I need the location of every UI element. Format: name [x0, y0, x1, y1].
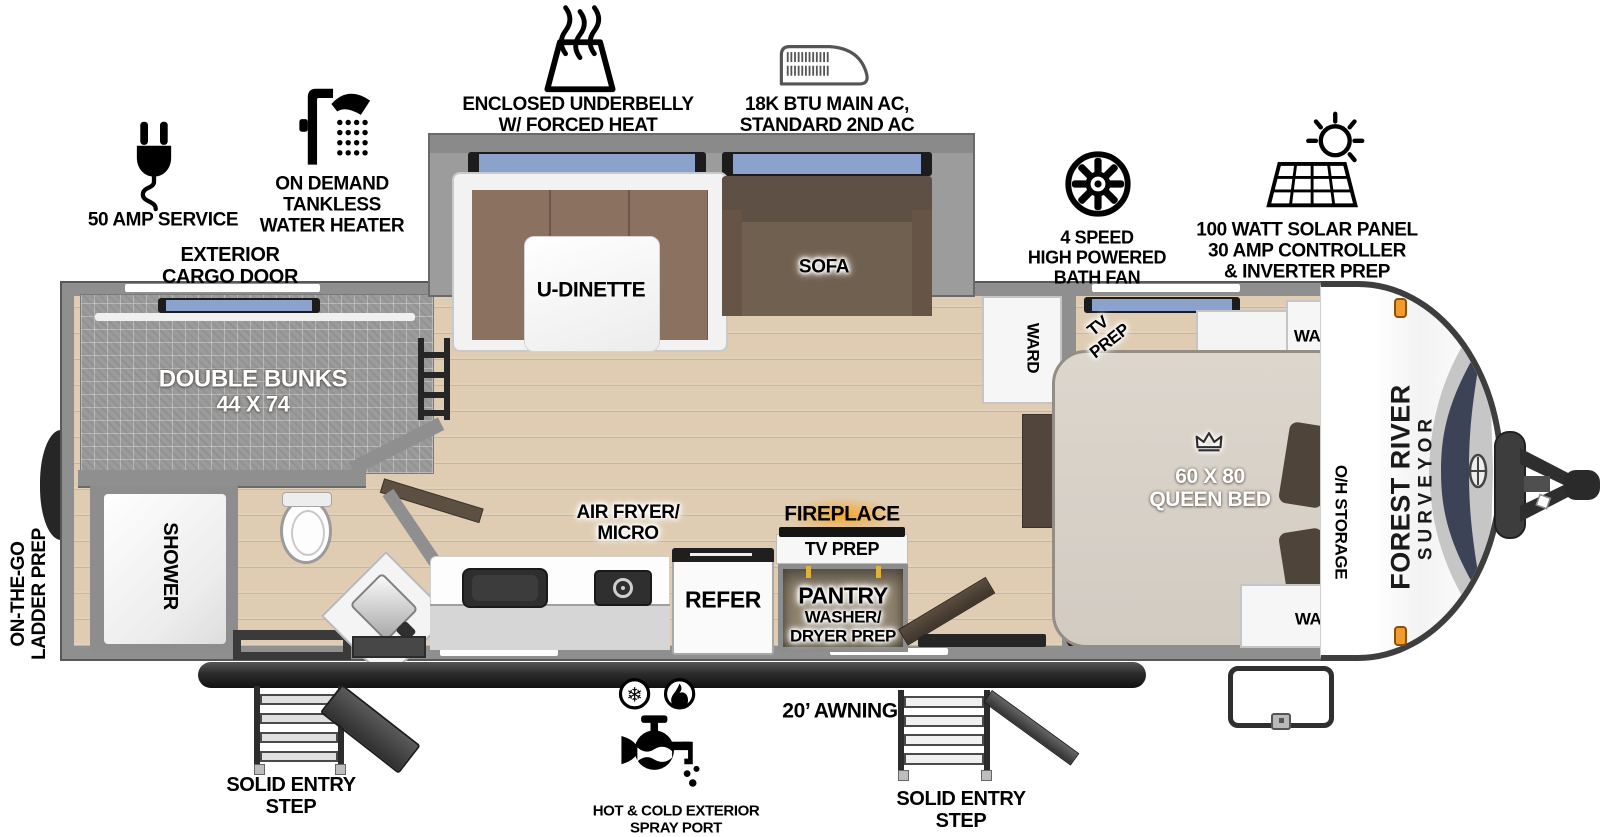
sofa-window [722, 152, 932, 176]
sofa-armrest [912, 210, 932, 316]
refer-label: REFER [685, 587, 761, 612]
step-foot [981, 770, 992, 781]
solar-label: 100 WATT SOLAR PANEL 30 AMP CONTROLLER &… [1196, 221, 1417, 284]
open-door-flap-right [983, 690, 1079, 766]
ladder-prep-label: ON-THE-GO LADDER PREP [9, 528, 51, 660]
kitchen-sink [462, 568, 548, 608]
fan-icon [1062, 148, 1134, 220]
bath-vanity-frame [233, 630, 351, 660]
queen-bed-label: 60 X 80 QUEEN BED [1149, 465, 1270, 511]
brand-make: FOREST RIVER [1387, 384, 1417, 590]
step-tread [260, 751, 338, 762]
toilet-lid [291, 510, 325, 556]
step-tread [904, 715, 984, 727]
shower-label: SHOWER [159, 522, 181, 610]
step-tread [904, 696, 984, 708]
heated-underbelly-icon [536, 0, 624, 96]
marker-light [1394, 298, 1407, 318]
oh-storage-label: O/H STORAGE [1331, 465, 1350, 579]
ladder-rung [418, 392, 450, 398]
air-conditioner-icon [775, 36, 875, 90]
entry-step-left-label: SOLID ENTRY STEP [226, 774, 355, 818]
water-heater-label: ON DEMAND TANKLESS WATER HEATER [260, 175, 404, 238]
hall-ward-label: WARD [1023, 323, 1042, 373]
entry-step-right-label: SOLID ENTRY STEP [896, 788, 1025, 832]
ladder-rung [418, 372, 450, 378]
sink-basin [472, 575, 538, 601]
bath-fan-label: 4 SPEED HIGH POWERED BATH FAN [1028, 228, 1166, 287]
power-plug-icon [128, 120, 180, 216]
cooktop [594, 570, 652, 606]
cargo-door-label: EXTERIOR CARGO DOOR [162, 244, 298, 288]
ac-label: 18K BTU MAIN AC, STANDARD 2ND AC [740, 95, 915, 137]
counter-face [430, 604, 670, 650]
floorplan-page: { "colors": { "wall_gray": "#8f8f8f", "f… [0, 0, 1600, 836]
storage-compartment-door [1228, 666, 1334, 728]
spray-port-icon: ❄ [612, 676, 720, 798]
slideout-top-wall [430, 135, 973, 153]
dinette-label: U-DINETTE [537, 278, 645, 301]
bunk-mattress-edge [95, 313, 415, 321]
latch-button [1279, 718, 1284, 723]
step-tread [904, 753, 984, 765]
pantry-handle [876, 566, 881, 578]
shower-head-icon [296, 82, 376, 168]
hitch-assembly [1494, 424, 1600, 548]
bunk-ladder [418, 338, 450, 420]
bath-cabinet [352, 636, 426, 658]
step-tread [904, 734, 984, 746]
spray-port-label: HOT & COLD EXTERIOR SPRAY PORT [593, 804, 760, 837]
bunks-label: DOUBLE BUNKS 44 X 74 [159, 367, 348, 418]
sofa-back [722, 176, 932, 222]
air-fryer-label: AIR FRYER/ MICRO [577, 503, 680, 545]
bunk-window [158, 298, 320, 313]
crown-icon [1194, 430, 1224, 453]
ladder-rail [418, 338, 424, 420]
entry-step-right [898, 690, 990, 778]
sofa-label: SOFA [799, 258, 849, 279]
amp-service-label: 50 AMP SERVICE [88, 211, 238, 232]
refer-handle [690, 553, 752, 556]
fireplace-front [779, 527, 905, 537]
burner-center [621, 586, 625, 590]
ladder-rung [418, 410, 450, 416]
sofa [722, 176, 932, 316]
ladder-rung [418, 352, 450, 358]
brand-label: FOREST RIVER SURVEYOR [1387, 384, 1438, 590]
toilet [280, 498, 332, 564]
fireplace-label: FIREPLACE [784, 502, 899, 525]
bottom-wall-strip-left [440, 649, 558, 656]
toilet-tank [282, 492, 332, 507]
pantry-label: PANTRY WASHER/ DRYER PREP [790, 584, 896, 647]
pantry-handle [806, 566, 811, 578]
compartment-latch [1271, 713, 1291, 730]
entry-mat [918, 634, 1046, 647]
svg-text:❄: ❄ [626, 683, 643, 706]
tv-prep-kitchen-label: TV PREP [805, 540, 879, 560]
step-tread [260, 732, 338, 743]
ladder-rail [444, 338, 450, 420]
solar-panel-icon [1262, 108, 1368, 216]
step-foot [898, 770, 909, 781]
marker-light [1394, 626, 1407, 646]
brand-model: SURVEYOR [1416, 384, 1437, 590]
awning-label: 20’ AWNING [782, 699, 897, 722]
underbelly-label: ENCLOSED UNDERBELLY W/ FORCED HEAT [462, 95, 693, 137]
sofa-armrest [722, 210, 742, 316]
